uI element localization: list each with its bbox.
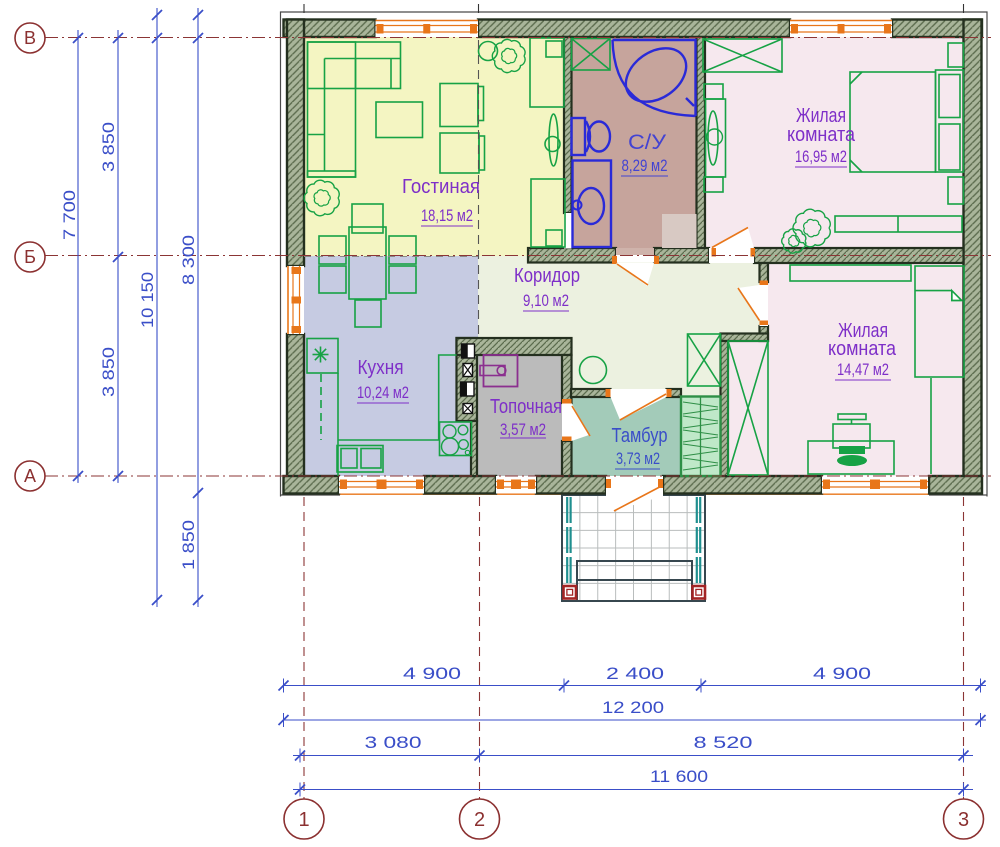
svg-text:10 150: 10 150 <box>138 272 157 328</box>
svg-text:14,47 м2: 14,47 м2 <box>837 360 889 379</box>
svg-text:Кухня: Кухня <box>358 357 404 379</box>
svg-text:4 900: 4 900 <box>403 664 461 683</box>
svg-text:С/У: С/У <box>628 131 667 154</box>
svg-text:3 850: 3 850 <box>99 122 118 172</box>
svg-text:16,95 м2: 16,95 м2 <box>795 147 847 166</box>
svg-text:3 080: 3 080 <box>365 733 422 752</box>
svg-text:4 900: 4 900 <box>813 664 871 683</box>
svg-text:8,29 м2: 8,29 м2 <box>622 156 668 175</box>
svg-text:2 400: 2 400 <box>606 664 664 683</box>
svg-text:3,73 м2: 3,73 м2 <box>616 449 660 468</box>
svg-text:2: 2 <box>474 809 485 831</box>
svg-text:Топочная: Топочная <box>490 396 562 418</box>
svg-text:В: В <box>24 28 36 48</box>
svg-text:10,24 м2: 10,24 м2 <box>357 383 409 402</box>
svg-text:А: А <box>24 466 36 486</box>
svg-text:3: 3 <box>958 809 969 831</box>
svg-text:11 600: 11 600 <box>650 767 708 786</box>
svg-text:3,57 м2: 3,57 м2 <box>500 420 546 439</box>
svg-text:8 520: 8 520 <box>694 733 753 752</box>
svg-text:8 300: 8 300 <box>179 235 198 285</box>
svg-text:1: 1 <box>298 809 309 831</box>
svg-text:комната: комната <box>787 124 856 146</box>
svg-text:7 700: 7 700 <box>60 190 79 240</box>
svg-text:1 850: 1 850 <box>179 520 198 570</box>
svg-text:Коридор: Коридор <box>514 265 580 287</box>
svg-text:3 850: 3 850 <box>99 347 118 397</box>
svg-text:Тамбур: Тамбур <box>612 425 668 447</box>
svg-text:комната: комната <box>828 338 897 360</box>
svg-text:Б: Б <box>24 247 36 267</box>
svg-text:Гостиная: Гостиная <box>402 176 480 198</box>
svg-text:18,15 м2: 18,15 м2 <box>421 206 473 225</box>
svg-text:12 200: 12 200 <box>602 698 664 717</box>
svg-text:9,10 м2: 9,10 м2 <box>523 291 569 310</box>
